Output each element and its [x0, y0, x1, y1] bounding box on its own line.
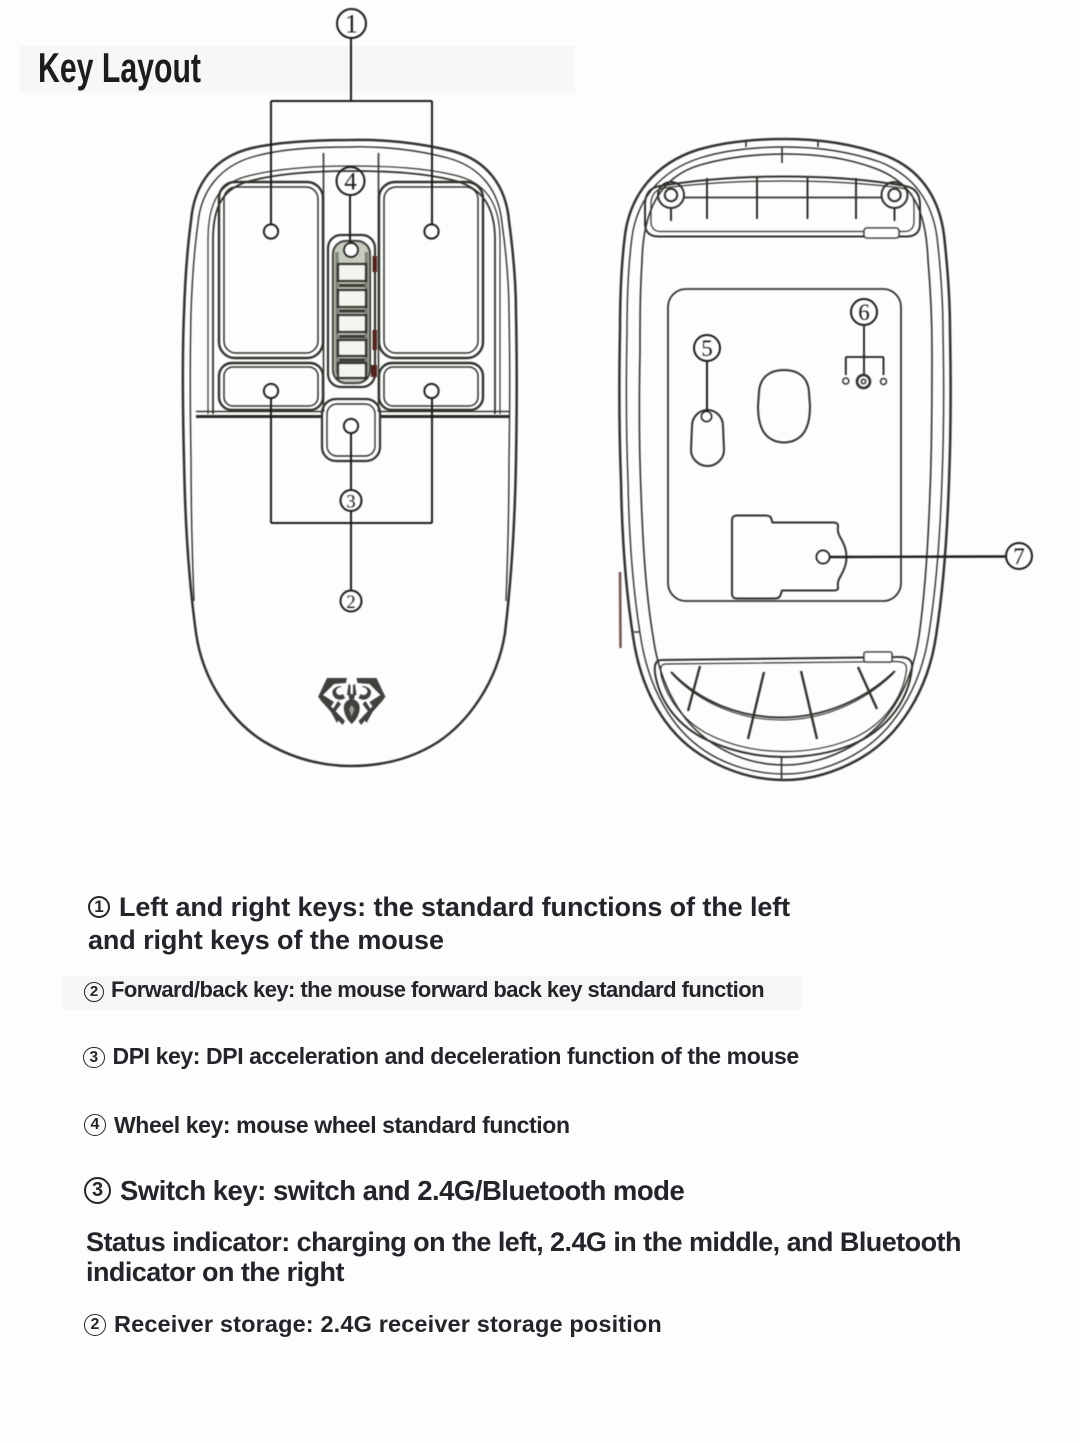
svg-text:6: 6 — [858, 300, 870, 325]
svg-text:7: 7 — [1013, 544, 1025, 569]
svg-text:3: 3 — [346, 493, 355, 513]
svg-text:4: 4 — [344, 169, 357, 196]
svg-text:5: 5 — [701, 336, 713, 361]
svg-text:1: 1 — [345, 10, 358, 39]
svg-text:2: 2 — [346, 593, 355, 613]
